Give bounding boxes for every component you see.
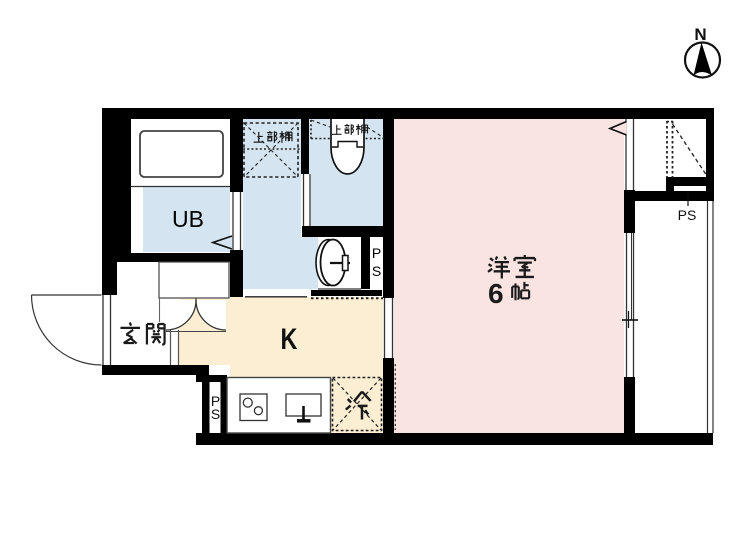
svg-text:S: S [372, 263, 381, 279]
svg-text:UB: UB [172, 206, 204, 232]
svg-text:PS: PS [678, 207, 697, 223]
svg-text:K: K [281, 322, 298, 355]
svg-text:N: N [694, 25, 706, 44]
svg-text:P: P [372, 245, 381, 261]
svg-text:S: S [211, 406, 220, 422]
svg-text:6: 6 [488, 278, 504, 309]
